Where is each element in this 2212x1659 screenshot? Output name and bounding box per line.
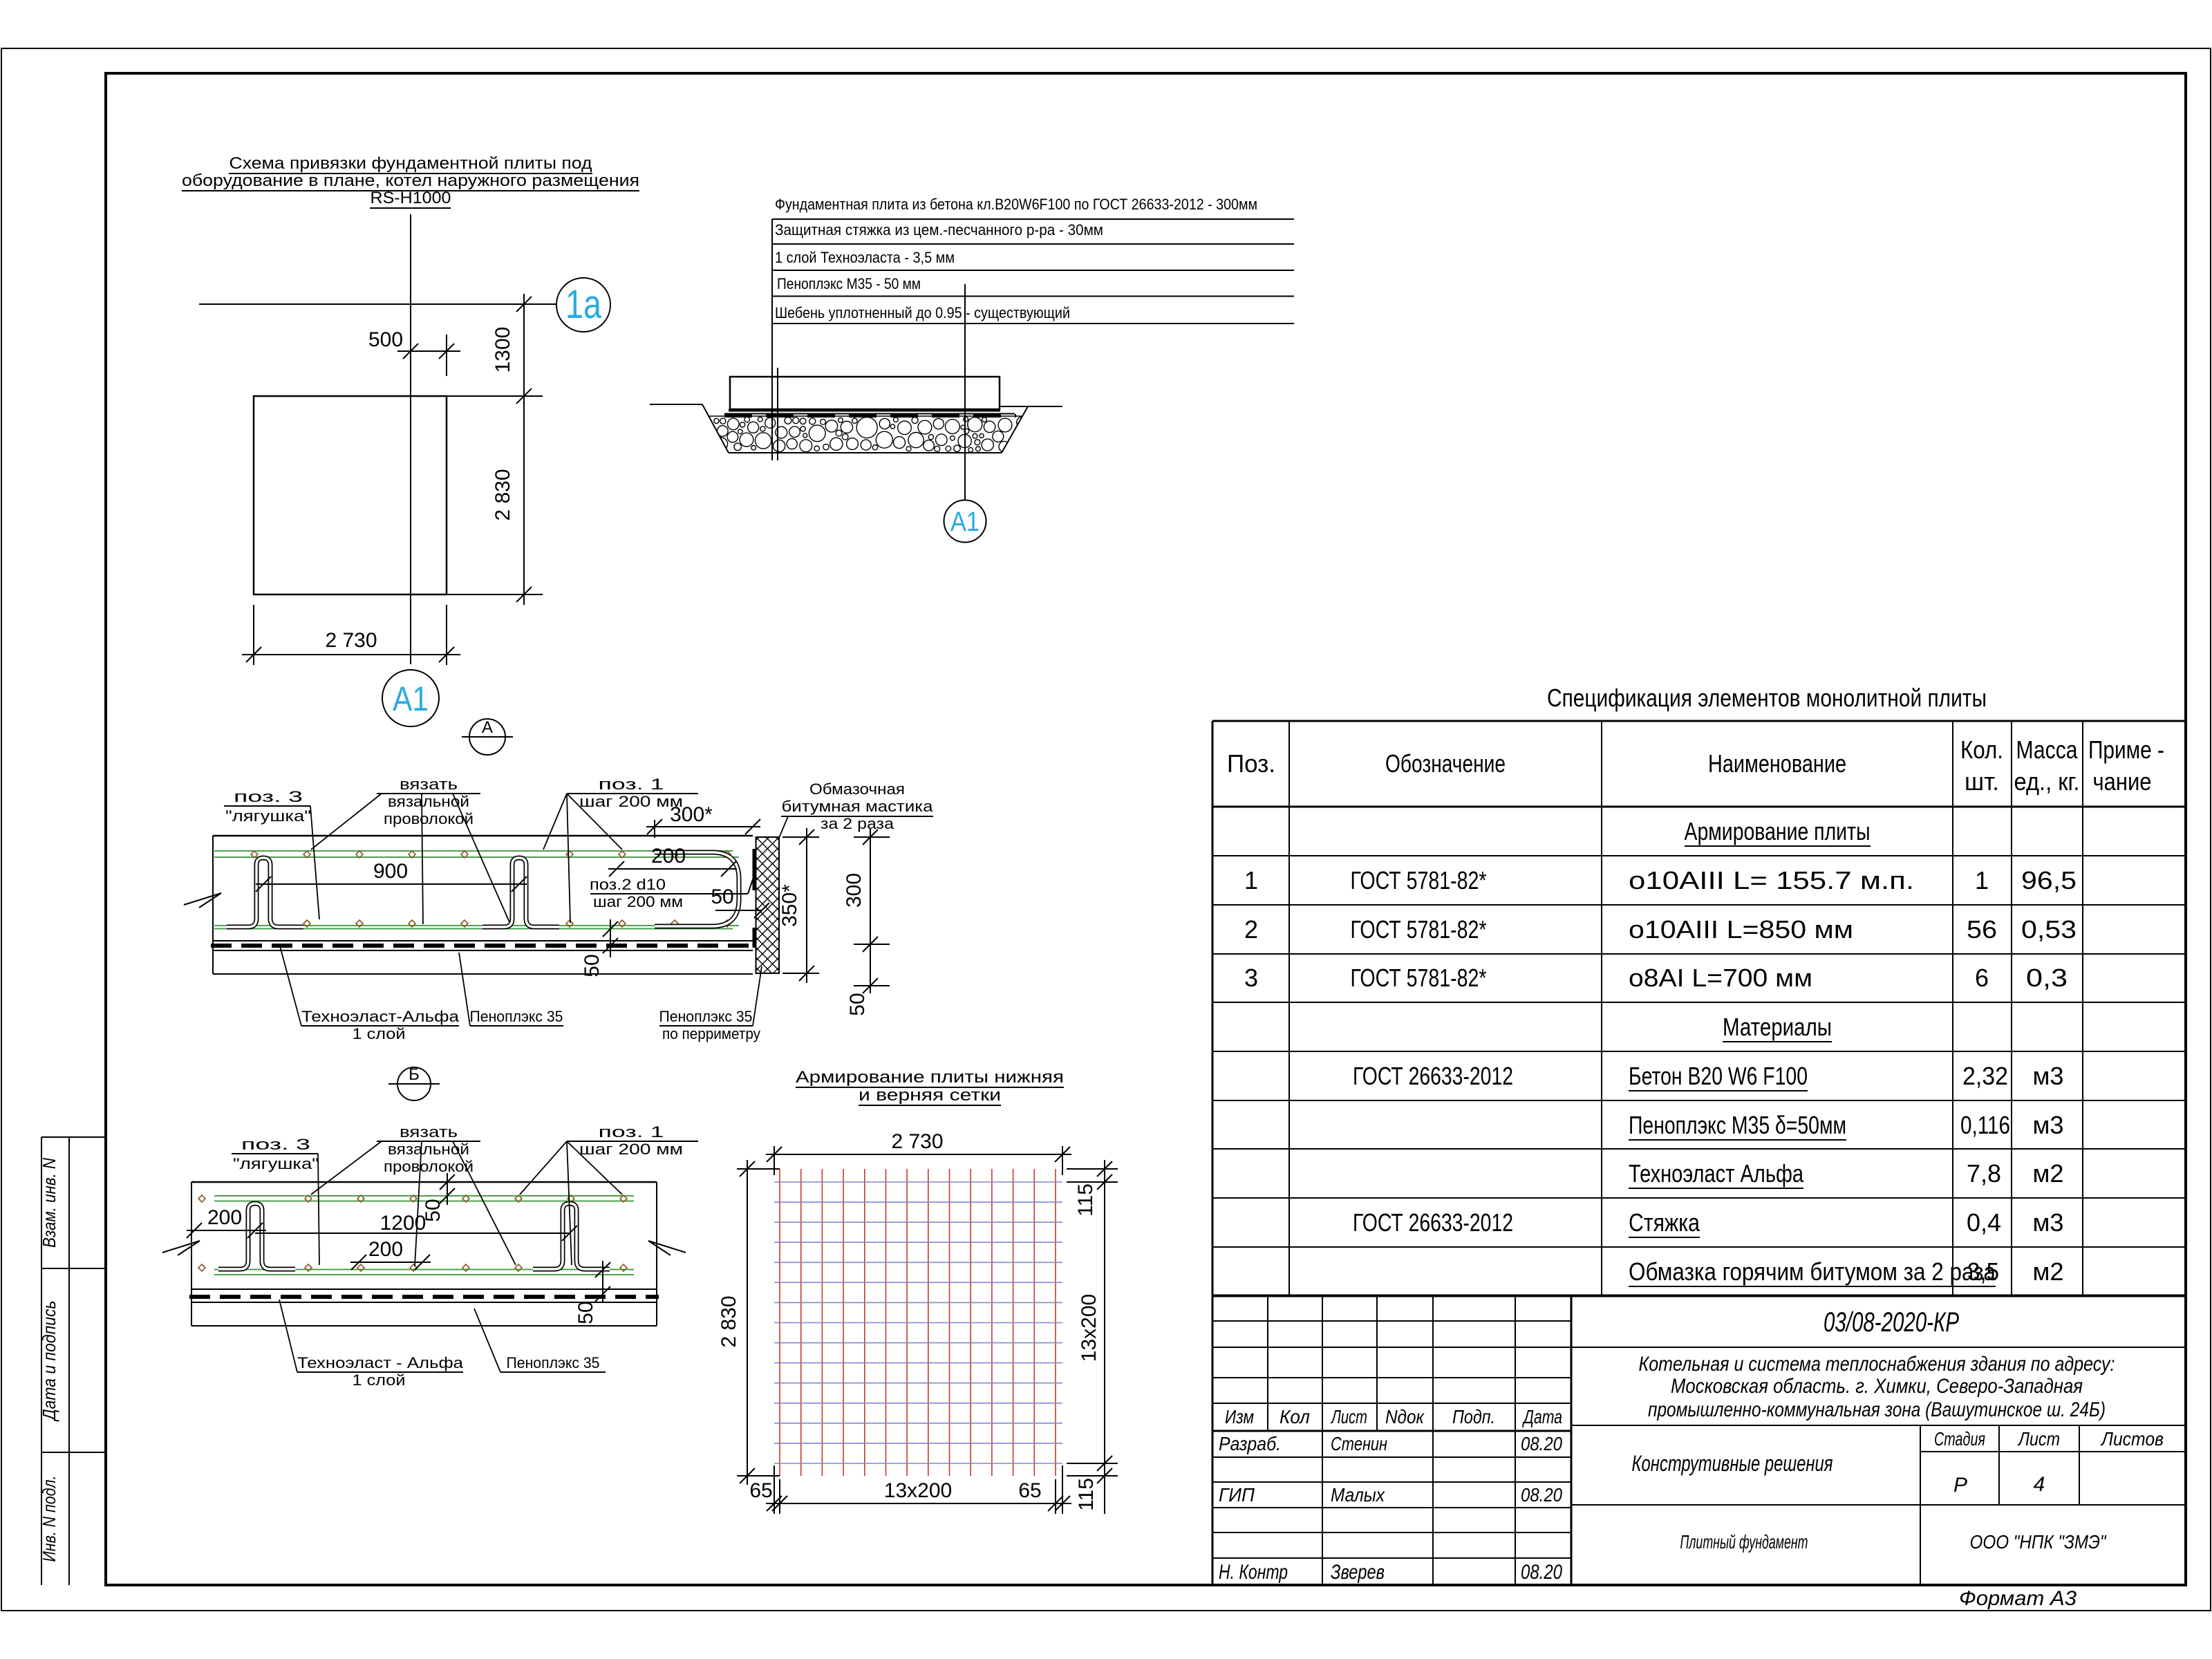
svg-text:2: 2: [1244, 915, 1258, 944]
svg-text:поз. 3: поз. 3: [234, 788, 303, 805]
svg-text:Зверев: Зверев: [1331, 1561, 1385, 1584]
svg-text:350*: 350*: [778, 884, 801, 927]
svg-text:Техноэласт - Альфа: Техноэласт - Альфа: [297, 1354, 464, 1371]
svg-text:RS-H1000: RS-H1000: [371, 189, 451, 207]
svg-text:Пеноплэкс 35: Пеноплэкс 35: [507, 1354, 600, 1371]
svg-text:ГОСТ 5781-82*: ГОСТ 5781-82*: [1351, 915, 1487, 944]
svg-text:Дата и подпись: Дата и подпись: [39, 1301, 59, 1423]
svg-text:оборудование в плане, котел на: оборудование в плане, котел наружного ра…: [182, 171, 639, 190]
svg-text:Подп.: Подп.: [1452, 1406, 1495, 1427]
svg-text:Поз.: Поз.: [1227, 749, 1275, 778]
svg-text:Масса: Масса: [2016, 735, 2079, 764]
svg-text:08.20: 08.20: [1521, 1433, 1562, 1454]
svg-text:50: 50: [574, 1301, 597, 1324]
svg-text:Лист: Лист: [2017, 1428, 2060, 1450]
svg-text:вязать: вязать: [400, 1123, 458, 1141]
svg-text:08.20: 08.20: [1521, 1561, 1562, 1584]
svg-text:проволокой: проволокой: [384, 1158, 474, 1175]
svg-text:ГОСТ 5781-82*: ГОСТ 5781-82*: [1351, 866, 1487, 894]
svg-text:0,116: 0,116: [1960, 1111, 2010, 1139]
svg-text:Лист: Лист: [1331, 1406, 1367, 1427]
svg-text:Фундаментная плита из бетона к: Фундаментная плита из бетона кл.B20W6F10…: [775, 196, 1257, 213]
svg-text:Пеноплэкс М35 - 50 мм: Пеноплэкс М35 - 50 мм: [777, 275, 921, 292]
svg-text:Н. Контр: Н. Контр: [1219, 1561, 1288, 1584]
svg-text:115: 115: [1075, 1478, 1098, 1511]
svg-text:13x200: 13x200: [884, 1479, 952, 1502]
svg-text:м2: м2: [2033, 1257, 2064, 1286]
svg-text:Стяжка: Стяжка: [1629, 1208, 1700, 1237]
svg-text:шаг 200 мм: шаг 200 мм: [579, 793, 683, 810]
svg-text:300: 300: [843, 873, 865, 908]
svg-text:65: 65: [1018, 1479, 1041, 1502]
svg-text:13x200: 13x200: [1078, 1294, 1100, 1362]
svg-text:Схема привязки фундаментной пл: Схема привязки фундаментной плиты под: [229, 154, 592, 173]
svg-text:Котельная и система теплоснабж: Котельная и система теплоснабжения здани…: [1639, 1353, 2115, 1376]
svg-text:Пеноплэкс М35 δ=50мм: Пеноплэкс М35 δ=50мм: [1629, 1111, 1846, 1139]
svg-text:900: 900: [373, 860, 408, 883]
svg-text:Армирование плиты: Армирование плиты: [1685, 817, 1871, 845]
svg-text:03/08-2020-КР: 03/08-2020-КР: [1824, 1307, 1959, 1338]
svg-text:08.20: 08.20: [1521, 1484, 1562, 1506]
svg-text:поз. 1: поз. 1: [599, 1123, 664, 1141]
svg-text:шаг 200 мм: шаг 200 мм: [593, 893, 683, 910]
svg-text:вязальной: вязальной: [388, 793, 469, 810]
svg-text:Обмазочная: Обмазочная: [809, 780, 905, 798]
svg-text:Листов: Листов: [2100, 1428, 2164, 1450]
svg-text:0,3: 0,3: [2026, 964, 2068, 992]
svg-text:6: 6: [1975, 964, 1989, 992]
svg-text:м2: м2: [2033, 1159, 2064, 1188]
svg-text:Московская область. г. Химки,: Московская область. г. Химки, Северо-Зап…: [1671, 1375, 2083, 1398]
svg-text:ООО "НПК "ЗМЭ": ООО "НПК "ЗМЭ": [1970, 1531, 2107, 1553]
svg-text:по перриметру: по перриметру: [662, 1025, 760, 1042]
svg-text:2 730: 2 730: [891, 1130, 943, 1153]
svg-text:Армирование плиты нижняя: Армирование плиты нижняя: [796, 1068, 1064, 1087]
svg-text:1: 1: [1244, 866, 1258, 894]
svg-text:ГОСТ 26633-2012: ГОСТ 26633-2012: [1353, 1208, 1513, 1237]
svg-text:Обозначение: Обозначение: [1385, 749, 1506, 778]
svg-text:0,4: 0,4: [1967, 1208, 2001, 1237]
svg-text:50: 50: [846, 993, 869, 1015]
svg-text:Материалы: Материалы: [1723, 1013, 1832, 1041]
svg-text:А: А: [482, 718, 493, 737]
svg-text:Техноэласт Альфа: Техноэласт Альфа: [1629, 1159, 1804, 1188]
svg-text:50: 50: [711, 885, 733, 908]
svg-text:Инв. N подл.: Инв. N подл.: [39, 1476, 59, 1562]
svg-text:о10АIII L=850 мм: о10АIII L=850 мм: [1629, 915, 1853, 944]
svg-text:2,32: 2,32: [1962, 1062, 2008, 1090]
svg-text:500: 500: [368, 328, 403, 351]
svg-text:2 830: 2 830: [491, 469, 514, 521]
svg-text:3,5: 3,5: [1967, 1257, 1999, 1286]
svg-text:шт.: шт.: [1965, 767, 1999, 796]
svg-text:ГИП: ГИП: [1219, 1484, 1255, 1506]
svg-text:"лягушка": "лягушка": [225, 807, 311, 825]
svg-text:Кол: Кол: [1280, 1406, 1310, 1427]
svg-text:50: 50: [422, 1199, 444, 1221]
svg-text:м3: м3: [2033, 1062, 2064, 1090]
svg-text:Пеноплэкс 35: Пеноплэкс 35: [470, 1008, 563, 1025]
svg-text:промышленно-коммунальная зона: промышленно-коммунальная зона (Вашутинск…: [1648, 1398, 2106, 1421]
svg-text:200: 200: [651, 845, 686, 868]
svg-text:2 730: 2 730: [325, 629, 377, 652]
svg-text:Б: Б: [409, 1065, 420, 1084]
svg-text:поз. 3: поз. 3: [241, 1136, 310, 1153]
svg-text:Обмазка горячим битумом за 2 р: Обмазка горячим битумом за 2 раза: [1629, 1257, 1996, 1286]
svg-text:Малых: Малых: [1331, 1484, 1385, 1506]
svg-text:Шебень уплотненный до 0.95 - с: Шебень уплотненный до 0.95 - существующи…: [775, 304, 1070, 321]
svg-text:1a: 1a: [565, 282, 602, 327]
svg-text:"лягушка": "лягушка": [233, 1155, 319, 1172]
svg-text:ед., кг.: ед., кг.: [2014, 767, 2080, 796]
svg-text:Защитная стяжка из цем.-песчан: Защитная стяжка из цем.-песчанного р-ра …: [775, 221, 1103, 238]
svg-text:Стенин: Стенин: [1331, 1433, 1387, 1454]
svg-text:7,8: 7,8: [1967, 1159, 2001, 1188]
svg-text:Дата: Дата: [1522, 1406, 1562, 1427]
svg-text:шаг 200 мм: шаг 200 мм: [579, 1141, 683, 1158]
svg-text:56: 56: [1967, 915, 1997, 944]
svg-text:проволокой: проволокой: [384, 810, 474, 827]
svg-text:65: 65: [749, 1479, 772, 1502]
svg-text:битумная мастика: битумная мастика: [782, 798, 934, 815]
svg-text:вязать: вязать: [400, 776, 458, 793]
svg-text:и верняя сетки: и верняя сетки: [859, 1086, 1001, 1105]
svg-text:1 слой: 1 слой: [353, 1025, 406, 1042]
svg-text:Техноэласт-Альфа: Техноэласт-Альфа: [301, 1008, 460, 1025]
svg-text:1200: 1200: [380, 1212, 427, 1235]
svg-text:Конструтивные решения: Конструтивные решения: [1632, 1451, 1833, 1476]
svg-text:поз.2 d10: поз.2 d10: [590, 876, 666, 893]
svg-text:0,53: 0,53: [2021, 915, 2077, 944]
svg-text:1 слой: 1 слой: [353, 1371, 406, 1389]
svg-text:1 слой Техноэласта - 3,5 мм: 1 слой Техноэласта - 3,5 мм: [775, 249, 955, 266]
svg-text:о10АIII L= 155.7 м.п.: о10АIII L= 155.7 м.п.: [1629, 866, 1914, 894]
svg-text:1: 1: [1975, 866, 1989, 894]
svg-text:Nдок: Nдок: [1385, 1406, 1425, 1427]
svg-text:за 2 раза: за 2 раза: [821, 815, 894, 832]
svg-text:Р: Р: [1953, 1474, 1967, 1497]
svg-text:поз. 1: поз. 1: [599, 776, 664, 793]
svg-text:A1: A1: [393, 679, 429, 718]
svg-text:Наименование: Наименование: [1708, 749, 1846, 778]
svg-text:Разраб.: Разраб.: [1219, 1433, 1281, 1454]
svg-text:Стадия: Стадия: [1934, 1428, 1985, 1450]
svg-text:2 830: 2 830: [718, 1295, 740, 1347]
svg-text:чание: чание: [2093, 767, 2152, 796]
svg-text:Бетон B20 W6 F100: Бетон B20 W6 F100: [1629, 1062, 1808, 1090]
svg-text:3: 3: [1244, 964, 1258, 992]
svg-text:50: 50: [581, 954, 603, 977]
svg-text:115: 115: [1074, 1183, 1097, 1217]
svg-text:м3: м3: [2033, 1111, 2064, 1139]
svg-text:Кол.: Кол.: [1960, 735, 2003, 764]
svg-text:Плитный фундамент: Плитный фундамент: [1680, 1531, 1808, 1553]
svg-text:Приме -: Приме -: [2088, 735, 2164, 764]
svg-text:200: 200: [207, 1206, 242, 1229]
svg-text:Формат А3: Формат А3: [1959, 1587, 2077, 1610]
svg-text:96,5: 96,5: [2021, 866, 2077, 894]
svg-text:Спецификация элементов монолит: Спецификация элементов монолитной плиты: [1547, 684, 1987, 712]
svg-text:Изм: Изм: [1225, 1406, 1254, 1427]
svg-text:о8АI L=700 мм: о8АI L=700 мм: [1629, 964, 1812, 992]
svg-text:Взам. инв. N: Взам. инв. N: [39, 1158, 59, 1248]
svg-text:1300: 1300: [491, 327, 514, 373]
svg-text:4: 4: [2034, 1473, 2045, 1496]
svg-text:Пеноплэкс 35: Пеноплэкс 35: [659, 1008, 753, 1025]
svg-text:м3: м3: [2033, 1208, 2064, 1237]
svg-text:200: 200: [368, 1238, 403, 1261]
svg-text:ГОСТ 26633-2012: ГОСТ 26633-2012: [1353, 1062, 1513, 1090]
svg-text:ГОСТ 5781-82*: ГОСТ 5781-82*: [1351, 964, 1487, 992]
svg-text:A1: A1: [950, 507, 980, 537]
